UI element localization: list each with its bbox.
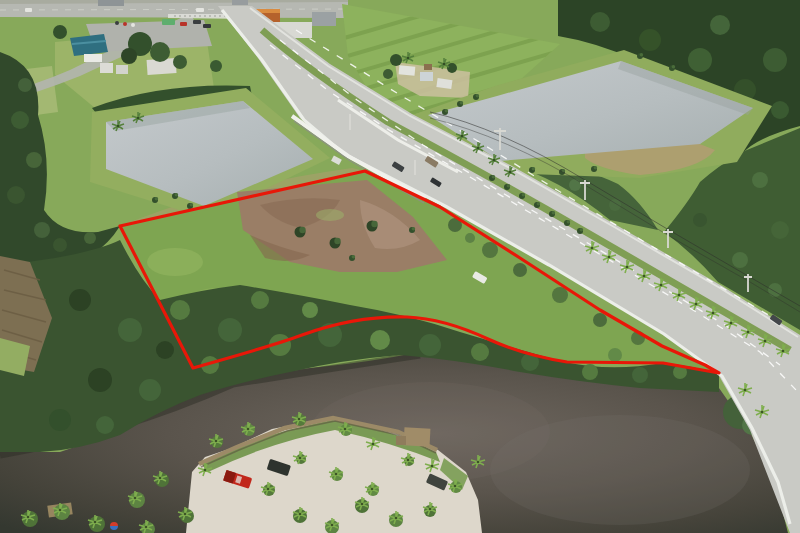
aerial-photo-canvas bbox=[0, 0, 800, 533]
green-bus bbox=[162, 19, 175, 25]
aerial-photo bbox=[0, 0, 800, 533]
fuel-canopy bbox=[84, 54, 102, 62]
gray-building bbox=[312, 12, 336, 26]
